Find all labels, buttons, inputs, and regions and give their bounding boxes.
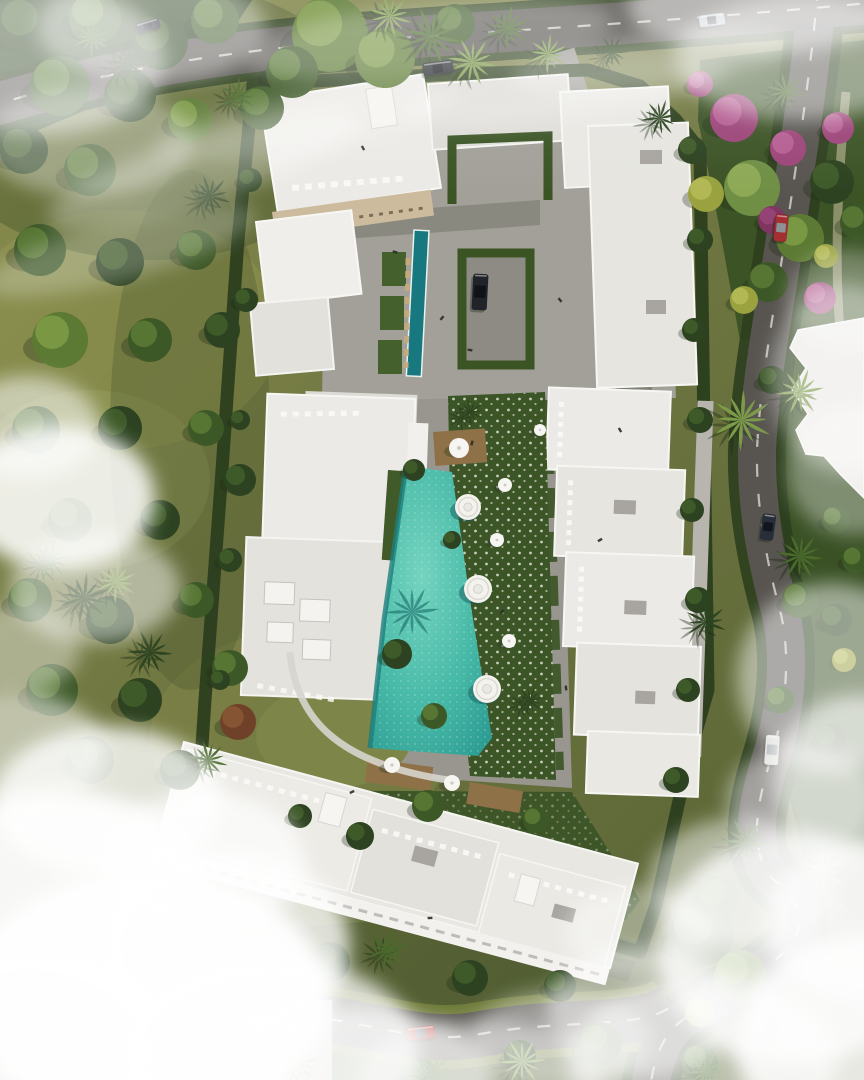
atmospheric-haze xyxy=(0,0,864,1080)
render-canvas xyxy=(0,0,864,1080)
aerial-site-render xyxy=(0,0,864,1080)
